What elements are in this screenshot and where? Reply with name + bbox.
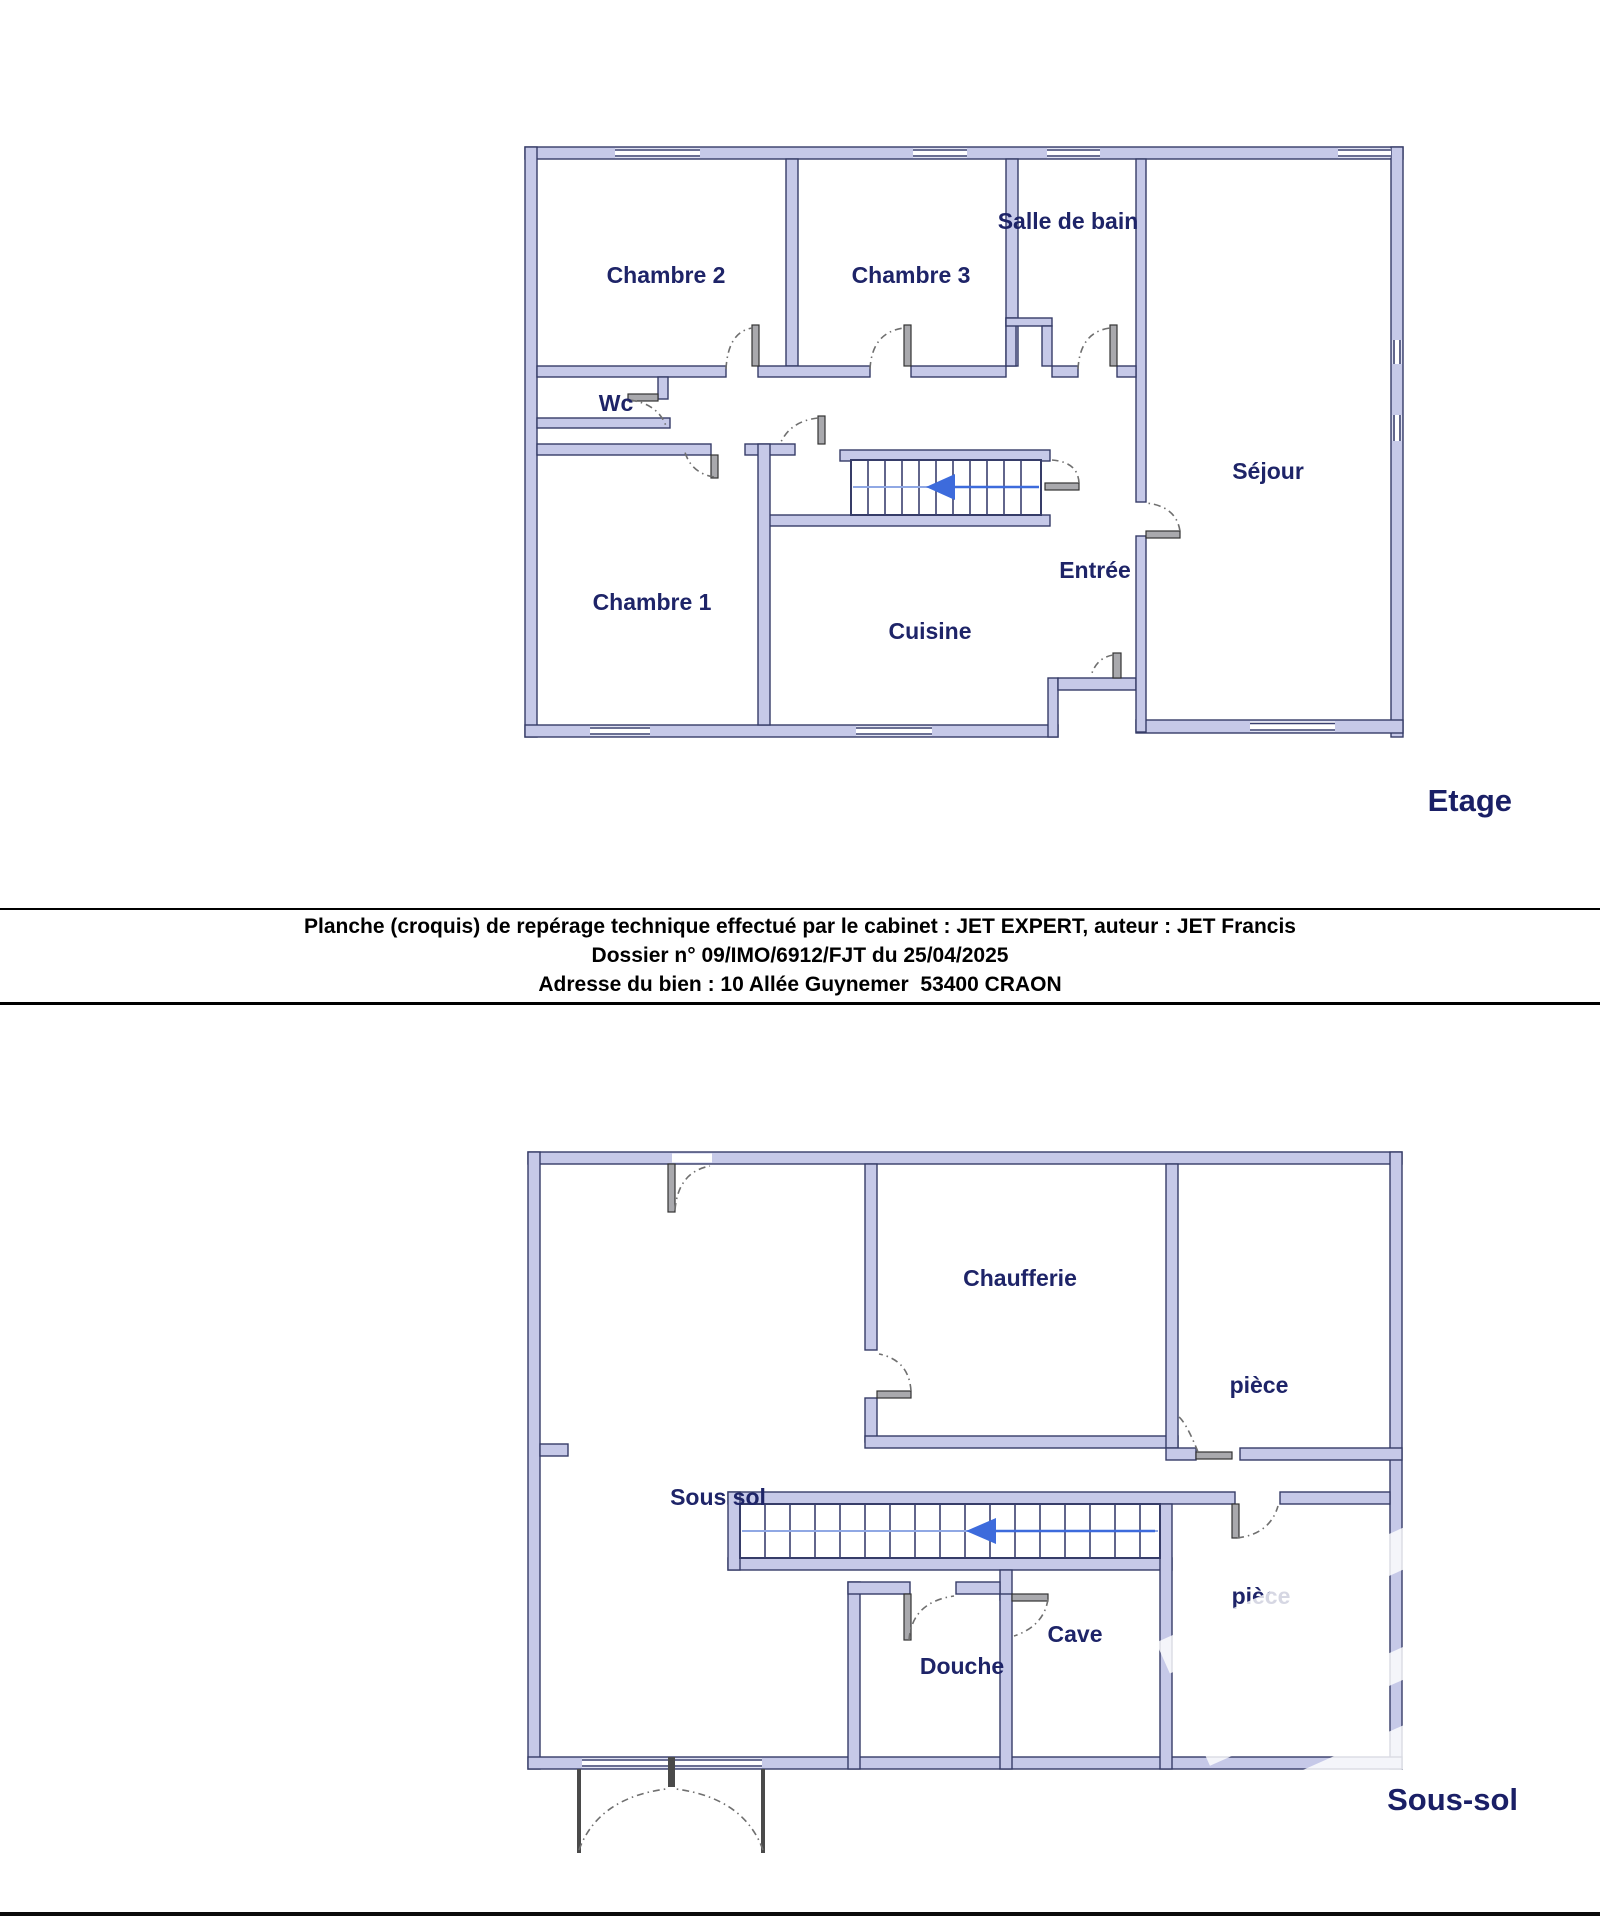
etage-room-labels: Chambre 2 Chambre 3 Salle de bain Wc Cha…: [593, 208, 1304, 644]
window: [1338, 149, 1391, 158]
room-label-douche: Douche: [920, 1653, 1004, 1679]
sous-sol-title: Sous-sol: [1387, 1782, 1518, 1818]
door: [1091, 653, 1121, 678]
room-label-chambre-3: Chambre 3: [852, 262, 971, 288]
room-label-chambre-1: Chambre 1: [593, 589, 712, 615]
sous-sol-floor-plan: Chaufferie pièce Sous sol pièce Cave Dou…: [528, 1152, 1502, 1853]
room-label-cuisine: Cuisine: [888, 618, 971, 644]
etage-floor-plan: Chambre 2 Chambre 3 Salle de bain Wc Cha…: [525, 147, 1403, 737]
band-line-adresse: Adresse du bien : 10 Allée Guynemer 5340…: [0, 973, 1600, 997]
window: [856, 727, 932, 736]
door: [780, 416, 825, 444]
room-label-entree: Entrée: [1059, 557, 1131, 583]
door: [1146, 503, 1180, 538]
room-label-salle-de-bain: Salle de bain: [998, 208, 1139, 234]
etage-windows: [590, 149, 1402, 736]
etage-walls: [525, 147, 1403, 737]
door: [1078, 325, 1117, 369]
etage-title: Etage: [1428, 783, 1512, 819]
window: [590, 727, 650, 736]
window: [1047, 149, 1100, 158]
window: [1393, 415, 1402, 441]
window: [913, 149, 967, 158]
document-info-band: Planche (croquis) de repérage technique …: [0, 908, 1600, 1005]
door: [1232, 1504, 1278, 1538]
door: [904, 1594, 954, 1640]
door: [870, 325, 911, 369]
window: [1250, 722, 1335, 732]
page-bottom-rule: [0, 1912, 1600, 1916]
door: [1012, 1594, 1048, 1636]
sous-sol-stairs: [740, 1504, 1160, 1558]
band-line-cabinet: Planche (croquis) de repérage technique …: [0, 915, 1600, 939]
sous-sol-room-labels: Chaufferie pièce Sous sol pièce Cave Dou…: [670, 1265, 1290, 1679]
room-label-chaufferie: Chaufferie: [963, 1265, 1077, 1291]
double-door: [577, 1757, 765, 1853]
floor-plan-page: Chambre 2 Chambre 3 Salle de bain Wc Cha…: [0, 0, 1600, 1920]
etage-stairs: [851, 460, 1041, 515]
window: [615, 149, 700, 158]
room-label-sejour: Séjour: [1232, 458, 1304, 484]
room-label-wc: Wc: [599, 390, 634, 416]
band-line-dossier: Dossier n° 09/IMO/6912/FJT du 25/04/2025: [0, 944, 1600, 968]
door: [1045, 460, 1079, 490]
room-label-sous-sol: Sous sol: [670, 1484, 766, 1510]
window: [1393, 340, 1402, 364]
door: [668, 1154, 712, 1213]
room-label-piece-haut: pièce: [1230, 1372, 1289, 1398]
room-label-chambre-2: Chambre 2: [607, 262, 726, 288]
room-label-cave: Cave: [1048, 1621, 1103, 1647]
door: [877, 1354, 911, 1398]
door: [726, 325, 759, 369]
